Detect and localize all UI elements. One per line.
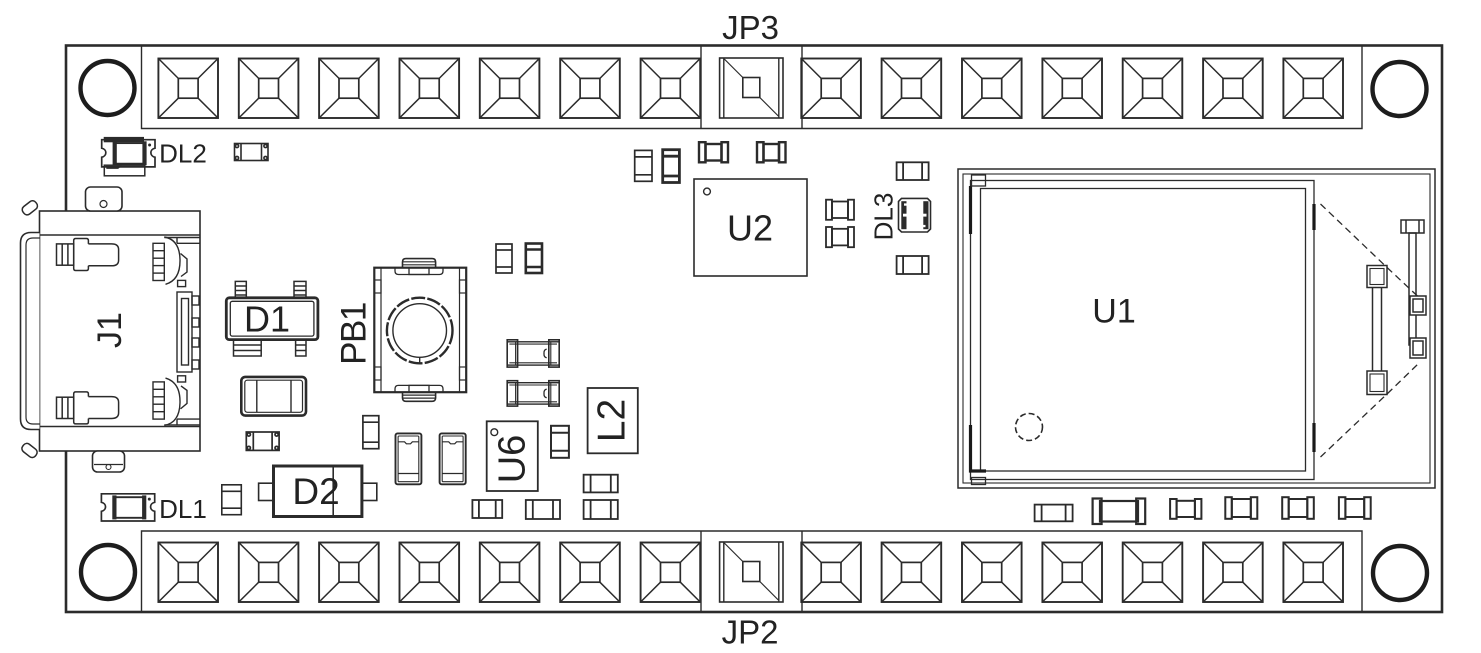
svg-text:JP2: JP2 [722, 614, 779, 651]
svg-text:D2: D2 [292, 471, 339, 512]
svg-text:U2: U2 [727, 208, 773, 249]
svg-text:U6: U6 [492, 435, 534, 484]
svg-text:DL2: DL2 [159, 139, 207, 169]
svg-text:DL1: DL1 [159, 494, 207, 524]
svg-text:L2: L2 [591, 399, 634, 442]
svg-text:JP3: JP3 [722, 9, 779, 46]
svg-text:J1: J1 [91, 312, 129, 348]
svg-text:D1: D1 [244, 299, 290, 340]
svg-text:DL3: DL3 [869, 193, 899, 241]
svg-text:U1: U1 [1092, 293, 1135, 331]
svg-text:PB1: PB1 [335, 303, 374, 365]
